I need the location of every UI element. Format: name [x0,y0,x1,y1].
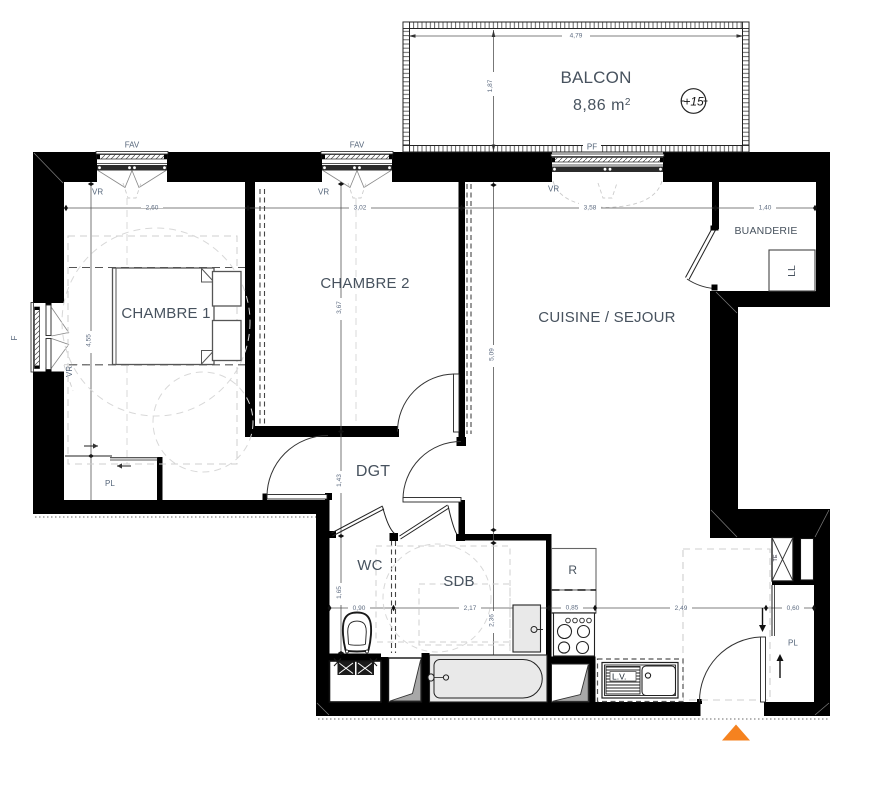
svg-text:PL: PL [105,479,115,488]
svg-text:PL: PL [788,639,798,648]
svg-text:VR: VR [548,185,559,194]
svg-text:VR: VR [92,188,103,197]
svg-text:LL: LL [786,265,798,277]
svg-text:2,60: 2,60 [146,205,159,212]
svg-text:WC: WC [357,557,382,574]
svg-text:BALCON: BALCON [560,68,631,87]
svg-text:0,85: 0,85 [566,605,579,612]
svg-text:4,55: 4,55 [86,334,93,347]
svg-text:FAV: FAV [125,141,140,150]
svg-text:CUISINE / SEJOUR: CUISINE / SEJOUR [538,309,675,326]
svg-text:5,09: 5,09 [489,348,496,361]
svg-text:1,65: 1,65 [336,586,343,599]
svg-text:+15: +15 [683,95,704,109]
svg-text:VR: VR [318,188,329,197]
svg-text:2,36: 2,36 [489,614,496,627]
svg-text:4,79: 4,79 [570,33,583,40]
svg-text:0,90: 0,90 [353,605,366,612]
svg-text:R: R [568,563,577,577]
svg-text:DGT: DGT [356,463,390,480]
svg-text:CHAMBRE 2: CHAMBRE 2 [320,275,409,292]
svg-text:L.V.: L.V. [612,672,626,682]
svg-text:TE: TE [773,554,779,561]
svg-text:8,86 m2: 8,86 m2 [573,97,631,114]
svg-text:CHAMBRE 1: CHAMBRE 1 [121,305,210,322]
svg-text:3,58: 3,58 [584,205,597,212]
svg-text:F: F [10,335,19,340]
svg-text:1,40: 1,40 [759,205,772,212]
svg-text:0,60: 0,60 [787,605,800,612]
svg-text:1,87: 1,87 [487,79,494,92]
svg-text:BUANDERIE: BUANDERIE [734,225,797,237]
svg-text:PF: PF [587,143,597,152]
svg-text:1,43: 1,43 [336,474,343,487]
svg-text:3,67: 3,67 [336,301,343,314]
svg-text:SDB: SDB [443,573,474,590]
svg-text:2,17: 2,17 [464,605,477,612]
svg-text:VR: VR [65,366,74,377]
svg-text:FAV: FAV [350,141,365,150]
svg-text:2,49: 2,49 [675,605,688,612]
